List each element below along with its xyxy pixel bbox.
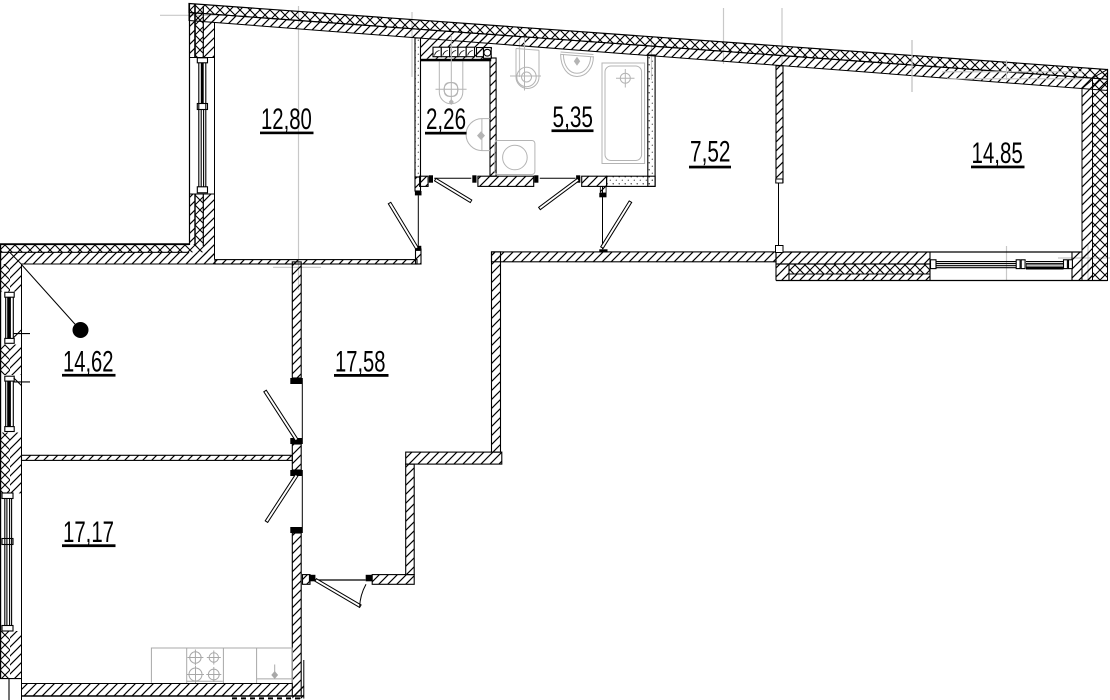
svg-text:12,80: 12,80 bbox=[261, 103, 312, 136]
svg-text:14,85: 14,85 bbox=[972, 137, 1023, 170]
svg-text:2,26: 2,26 bbox=[426, 103, 466, 136]
svg-text:17,58: 17,58 bbox=[335, 346, 386, 379]
svg-text:17,17: 17,17 bbox=[63, 516, 114, 549]
svg-text:7,52: 7,52 bbox=[690, 136, 731, 169]
svg-text:14,62: 14,62 bbox=[63, 346, 114, 379]
svg-text:5,35: 5,35 bbox=[553, 101, 594, 134]
